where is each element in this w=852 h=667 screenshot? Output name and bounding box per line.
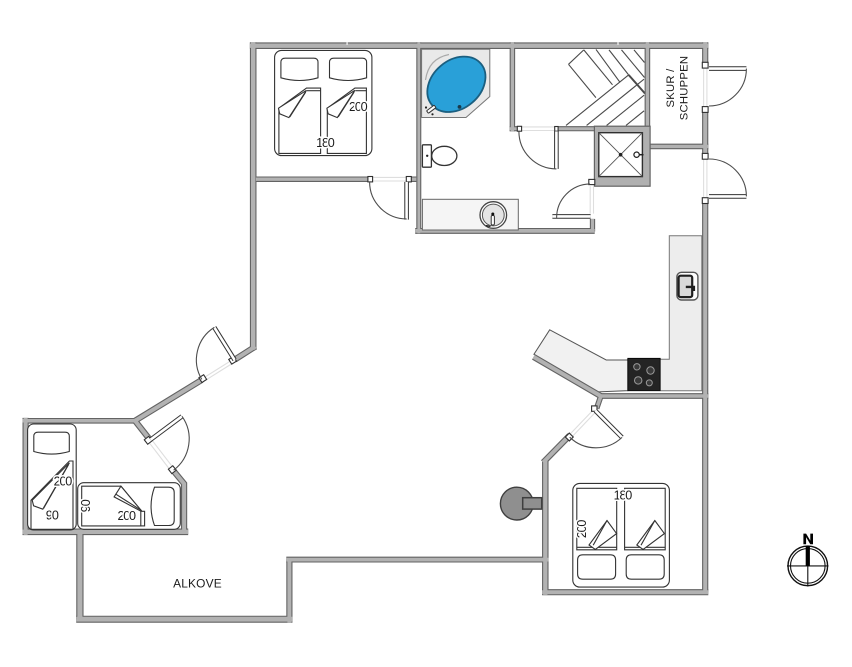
svg-text:90: 90: [79, 499, 93, 512]
svg-text:SCHUPPEN: SCHUPPEN: [678, 56, 690, 120]
svg-text:200: 200: [54, 474, 73, 488]
svg-text:200: 200: [575, 520, 589, 539]
svg-text:180: 180: [316, 136, 335, 150]
svg-text:SKUR /: SKUR /: [665, 68, 677, 108]
svg-text:90: 90: [46, 509, 59, 523]
svg-text:200: 200: [117, 509, 136, 523]
svg-text:200: 200: [349, 100, 368, 114]
svg-text:ALKOVE: ALKOVE: [173, 576, 222, 590]
svg-text:180: 180: [614, 488, 633, 502]
